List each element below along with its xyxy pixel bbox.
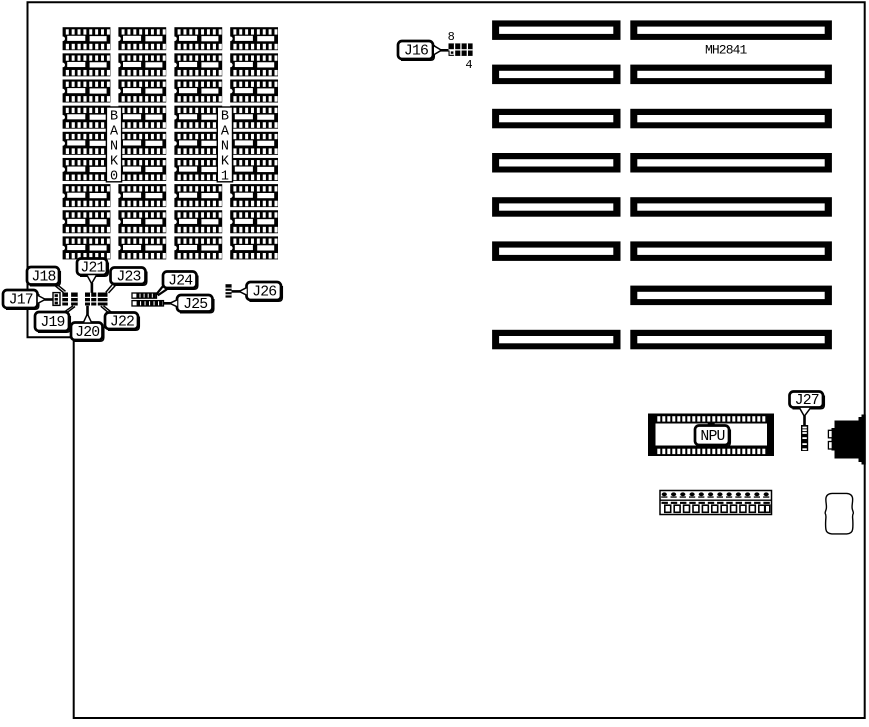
svg-text:K: K [221, 155, 230, 170]
svg-text:A: A [110, 125, 119, 140]
svg-text:1: 1 [221, 170, 229, 185]
svg-text:B: B [221, 110, 229, 125]
svg-text:J16: J16 [404, 44, 428, 60]
svg-text:J21: J21 [80, 260, 105, 276]
svg-text:N: N [110, 140, 118, 155]
svg-text:4: 4 [465, 58, 472, 72]
svg-text:A: A [221, 125, 230, 140]
svg-text:K: K [110, 155, 119, 170]
svg-text:B: B [110, 110, 118, 125]
svg-text:J19: J19 [40, 315, 64, 331]
svg-text:J23: J23 [116, 269, 140, 285]
svg-text:J20: J20 [75, 325, 99, 341]
svg-text:MH2841: MH2841 [705, 43, 748, 58]
svg-text:NPU: NPU [700, 429, 724, 445]
svg-text:0: 0 [110, 170, 118, 185]
svg-text:N: N [221, 140, 229, 155]
svg-text:J26: J26 [252, 285, 276, 301]
svg-text:J24: J24 [168, 273, 193, 289]
svg-text:J17: J17 [9, 293, 33, 309]
svg-text:J22: J22 [110, 314, 134, 330]
svg-text:8: 8 [448, 30, 455, 44]
svg-text:J27: J27 [795, 393, 819, 409]
svg-text:J18: J18 [31, 269, 55, 285]
svg-text:J25: J25 [183, 297, 207, 313]
